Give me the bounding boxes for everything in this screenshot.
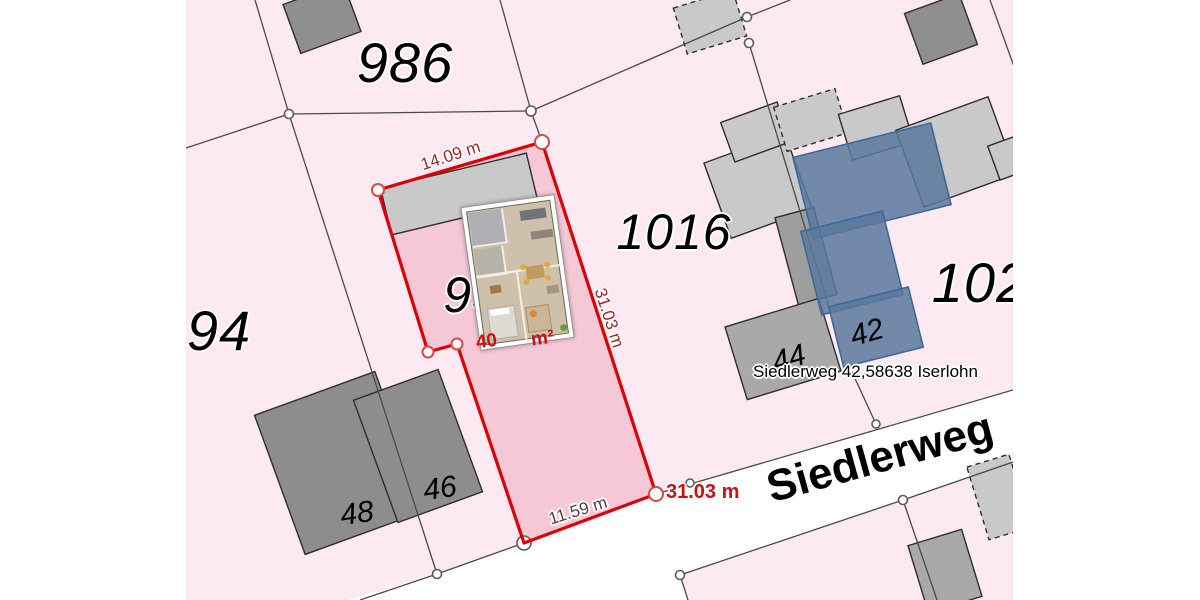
street-name-label: Siedlerweg	[738, 396, 1021, 519]
floorplan-dining-table	[525, 264, 545, 279]
cadastral-map-canvas[interactable]: 986 1016 94 102 93 48 46 44 42 Siedlerwe…	[0, 0, 1200, 600]
floorplan-dresser	[546, 284, 559, 294]
floorplan-chair-4	[545, 274, 552, 281]
measurement-top-edge: 14.09 m	[418, 137, 483, 175]
measurement-length-callout: 31.03 m	[666, 481, 739, 504]
address-callout: Siedlerweg 42,58638 Iserlohn	[753, 362, 978, 382]
floorplan-cabinet	[490, 284, 502, 293]
floorplan-kitchen-counter	[530, 229, 553, 240]
parcel-label-986: 986	[345, 30, 465, 95]
floorplan-room-bath	[468, 208, 508, 248]
house-floorplan-overlay[interactable]	[460, 194, 574, 351]
floorplan-floor	[466, 200, 569, 346]
house-number-42: 42	[833, 308, 900, 357]
floorplan-chair-3	[523, 278, 530, 285]
area-label-suffix: m²	[530, 327, 556, 352]
area-label-prefix: 40	[475, 330, 499, 354]
floorplan-wardrobe	[519, 208, 546, 222]
floorplan-plant	[560, 324, 568, 332]
parcel-label-1016: 1016	[594, 203, 754, 261]
house-number-46: 46	[408, 468, 472, 510]
house-number-48: 48	[325, 493, 389, 535]
measurement-right-edge: 31.03 m	[590, 286, 628, 351]
measurement-bottom-edge: 11.59 m	[546, 493, 609, 530]
